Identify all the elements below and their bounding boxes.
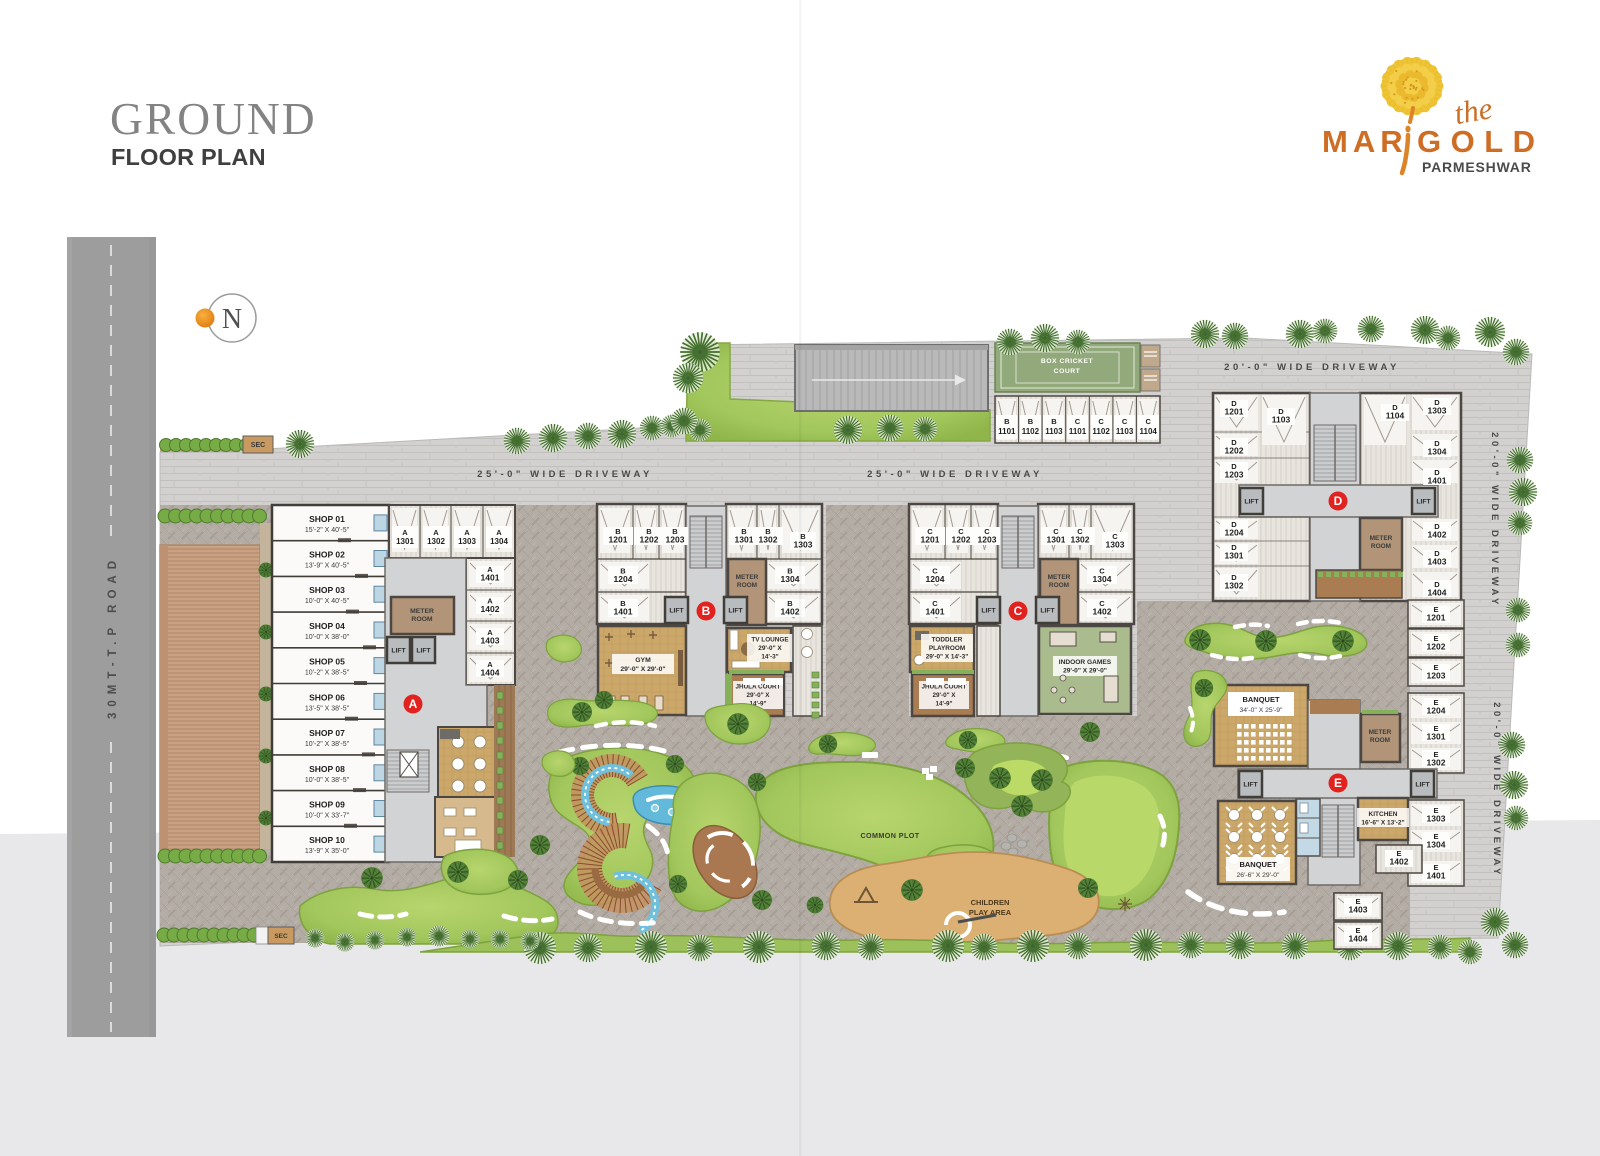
svg-text:1202: 1202 bbox=[640, 535, 659, 545]
svg-text:1401: 1401 bbox=[926, 607, 945, 617]
svg-text:C: C bbox=[1014, 604, 1023, 618]
svg-text:1203: 1203 bbox=[1427, 671, 1446, 681]
svg-text:SHOP 09: SHOP 09 bbox=[309, 800, 345, 810]
svg-text:29'-0" X: 29'-0" X bbox=[932, 692, 956, 699]
svg-text:1301: 1301 bbox=[396, 537, 414, 546]
svg-text:1103: 1103 bbox=[1116, 427, 1134, 436]
svg-text:1203: 1203 bbox=[978, 535, 997, 545]
svg-text:SHOP 07: SHOP 07 bbox=[309, 728, 345, 738]
svg-text:1403: 1403 bbox=[1349, 905, 1368, 915]
svg-text:LIFT: LIFT bbox=[1415, 782, 1430, 789]
svg-text:1304: 1304 bbox=[490, 537, 508, 546]
svg-text:LIFT: LIFT bbox=[981, 608, 996, 615]
svg-text:20'-0" WIDE DRIVEWAY: 20'-0" WIDE DRIVEWAY bbox=[1224, 362, 1400, 373]
svg-text:B: B bbox=[702, 604, 711, 618]
svg-text:29'-0" X 14'-3": 29'-0" X 14'-3" bbox=[926, 654, 969, 661]
svg-text:10'-0" X 33'-7": 10'-0" X 33'-7" bbox=[305, 813, 350, 820]
svg-text:A: A bbox=[464, 528, 470, 537]
svg-text:1302: 1302 bbox=[759, 535, 778, 545]
svg-text:1403: 1403 bbox=[1428, 557, 1447, 567]
svg-text:1404: 1404 bbox=[1428, 588, 1447, 598]
svg-text:29'-0" X: 29'-0" X bbox=[746, 692, 770, 699]
svg-text:LIFT: LIFT bbox=[1040, 608, 1055, 615]
svg-text:29'-0" X 29'-0": 29'-0" X 29'-0" bbox=[620, 666, 665, 673]
svg-text:1104: 1104 bbox=[1140, 427, 1158, 436]
svg-text:BANQUET: BANQUET bbox=[1239, 860, 1277, 869]
svg-text:METER: METER bbox=[410, 608, 434, 615]
svg-text:B: B bbox=[1004, 417, 1010, 426]
svg-text:1301: 1301 bbox=[1225, 551, 1244, 561]
svg-text:34'-0" X 25'-9": 34'-0" X 25'-9" bbox=[1240, 707, 1284, 714]
svg-text:METER: METER bbox=[1048, 574, 1071, 581]
svg-text:1304: 1304 bbox=[1427, 840, 1446, 850]
svg-text:COURT: COURT bbox=[1054, 368, 1081, 375]
svg-text:ROOM: ROOM bbox=[737, 582, 757, 589]
svg-text:MAR: MAR bbox=[1322, 124, 1408, 159]
svg-text:B: B bbox=[1051, 417, 1057, 426]
svg-text:1402: 1402 bbox=[1428, 530, 1447, 540]
svg-text:1201: 1201 bbox=[921, 535, 940, 545]
svg-text:1401: 1401 bbox=[614, 607, 633, 617]
svg-text:A: A bbox=[409, 697, 418, 711]
svg-text:LIFT: LIFT bbox=[1244, 499, 1259, 506]
svg-text:SHOP 05: SHOP 05 bbox=[309, 657, 345, 667]
svg-text:1404: 1404 bbox=[1349, 934, 1368, 944]
svg-text:20'-0" WIDE DRIVEWAY: 20'-0" WIDE DRIVEWAY bbox=[1491, 702, 1502, 878]
svg-text:SHOP 02: SHOP 02 bbox=[309, 550, 345, 560]
svg-text:1203: 1203 bbox=[666, 535, 685, 545]
svg-text:1402: 1402 bbox=[781, 607, 800, 617]
svg-text:30MT-T.P ROAD: 30MT-T.P ROAD bbox=[107, 555, 119, 719]
svg-text:SHOP 06: SHOP 06 bbox=[309, 692, 345, 702]
svg-text:25'-0" WIDE DRIVEWAY: 25'-0" WIDE DRIVEWAY bbox=[867, 469, 1043, 480]
svg-text:1304: 1304 bbox=[781, 574, 800, 584]
svg-text:1404: 1404 bbox=[481, 668, 500, 678]
svg-text:PARMESHWAR: PARMESHWAR bbox=[1422, 159, 1532, 175]
svg-text:29'-0" X: 29'-0" X bbox=[758, 645, 782, 652]
svg-text:1303: 1303 bbox=[1427, 814, 1446, 824]
svg-text:GROUND: GROUND bbox=[110, 93, 317, 144]
svg-text:KITCHEN: KITCHEN bbox=[1369, 811, 1398, 818]
svg-text:1202: 1202 bbox=[1427, 642, 1446, 652]
svg-text:1204: 1204 bbox=[614, 574, 633, 584]
svg-text:GYM: GYM bbox=[635, 657, 651, 664]
svg-text:LIFT: LIFT bbox=[669, 608, 684, 615]
svg-text:SHOP 03: SHOP 03 bbox=[309, 585, 345, 595]
svg-text:1201: 1201 bbox=[1225, 407, 1244, 417]
svg-text:13'-9" X 35'-0": 13'-9" X 35'-0" bbox=[305, 848, 350, 855]
svg-text:29'-0" X 29'-0": 29'-0" X 29'-0" bbox=[1063, 668, 1107, 675]
svg-text:1402: 1402 bbox=[1093, 607, 1112, 617]
svg-text:1202: 1202 bbox=[952, 535, 971, 545]
svg-text:LIFT: LIFT bbox=[391, 648, 406, 655]
svg-text:BOX CRICKET: BOX CRICKET bbox=[1041, 358, 1094, 365]
svg-text:1303: 1303 bbox=[1106, 540, 1125, 550]
svg-text:1402: 1402 bbox=[481, 604, 500, 614]
svg-text:13'-9" X 40'-5": 13'-9" X 40'-5" bbox=[305, 563, 350, 570]
svg-text:C: C bbox=[1145, 417, 1151, 426]
svg-text:PLAYROOM: PLAYROOM bbox=[929, 645, 965, 652]
svg-text:LIFT: LIFT bbox=[1243, 782, 1258, 789]
svg-text:1103: 1103 bbox=[1272, 415, 1291, 425]
svg-text:1301: 1301 bbox=[1427, 732, 1446, 742]
svg-text:14'-9": 14'-9" bbox=[935, 701, 952, 708]
svg-text:1303: 1303 bbox=[794, 540, 813, 550]
svg-text:SEC: SEC bbox=[251, 442, 265, 449]
svg-text:1304: 1304 bbox=[1093, 574, 1112, 584]
svg-text:SHOP 04: SHOP 04 bbox=[309, 621, 345, 631]
svg-text:1401: 1401 bbox=[1427, 871, 1446, 881]
svg-text:METER: METER bbox=[736, 574, 759, 581]
svg-text:1304: 1304 bbox=[1428, 447, 1447, 457]
svg-text:10'-2" X 38'-5": 10'-2" X 38'-5" bbox=[305, 741, 350, 748]
svg-text:C: C bbox=[1122, 417, 1128, 426]
svg-text:B: B bbox=[1028, 417, 1034, 426]
svg-text:C: C bbox=[1075, 417, 1081, 426]
svg-text:1101: 1101 bbox=[1069, 427, 1087, 436]
svg-text:1303: 1303 bbox=[458, 537, 476, 546]
svg-text:1101: 1101 bbox=[998, 427, 1016, 436]
svg-text:1302: 1302 bbox=[427, 537, 445, 546]
svg-text:1102: 1102 bbox=[1092, 427, 1110, 436]
svg-text:1204: 1204 bbox=[926, 574, 945, 584]
svg-text:A: A bbox=[433, 528, 439, 537]
svg-text:METER: METER bbox=[1370, 535, 1393, 542]
svg-text:ROOM: ROOM bbox=[411, 616, 432, 623]
svg-text:A: A bbox=[402, 528, 408, 537]
svg-text:BANQUET: BANQUET bbox=[1242, 695, 1280, 704]
svg-text:15'-2" X 40'-5": 15'-2" X 40'-5" bbox=[305, 527, 350, 534]
svg-text:1201: 1201 bbox=[1427, 613, 1446, 623]
svg-text:1202: 1202 bbox=[1225, 446, 1244, 456]
svg-text:D: D bbox=[1334, 494, 1343, 508]
svg-text:1102: 1102 bbox=[1022, 427, 1040, 436]
svg-text:1302: 1302 bbox=[1427, 758, 1446, 768]
svg-text:C: C bbox=[1098, 417, 1104, 426]
svg-text:1201: 1201 bbox=[609, 535, 628, 545]
svg-text:ROOM: ROOM bbox=[1049, 582, 1069, 589]
svg-text:E: E bbox=[1334, 776, 1342, 790]
svg-text:ROOM: ROOM bbox=[1371, 543, 1391, 550]
svg-text:LIFT: LIFT bbox=[416, 648, 431, 655]
svg-text:1203: 1203 bbox=[1225, 470, 1244, 480]
svg-text:1204: 1204 bbox=[1225, 528, 1244, 538]
svg-text:COMMON PLOT: COMMON PLOT bbox=[860, 831, 919, 840]
svg-text:1402: 1402 bbox=[1390, 857, 1409, 867]
svg-text:FLOOR PLAN: FLOOR PLAN bbox=[111, 144, 266, 170]
svg-text:1301: 1301 bbox=[735, 535, 754, 545]
svg-text:1401: 1401 bbox=[481, 573, 500, 583]
svg-text:METER: METER bbox=[1369, 729, 1392, 736]
svg-text:INDOOR GAMES: INDOOR GAMES bbox=[1059, 659, 1112, 666]
svg-text:LIFT: LIFT bbox=[1416, 499, 1431, 506]
svg-text:1302: 1302 bbox=[1071, 535, 1090, 545]
svg-text:1104: 1104 bbox=[1386, 411, 1405, 421]
svg-text:1303: 1303 bbox=[1428, 406, 1447, 416]
svg-text:16'-6" X 13'-2": 16'-6" X 13'-2" bbox=[1361, 820, 1404, 827]
svg-text:SHOP 08: SHOP 08 bbox=[309, 764, 345, 774]
svg-text:1302: 1302 bbox=[1225, 581, 1244, 591]
svg-text:14'-3": 14'-3" bbox=[761, 654, 778, 661]
svg-text:GOLD: GOLD bbox=[1417, 124, 1545, 159]
svg-text:TV LOUNGE: TV LOUNGE bbox=[751, 637, 789, 644]
svg-text:10'-0" X 38'-0": 10'-0" X 38'-0" bbox=[305, 634, 350, 641]
svg-text:13'-5" X 38'-5": 13'-5" X 38'-5" bbox=[305, 705, 350, 712]
svg-text:CHILDREN: CHILDREN bbox=[971, 898, 1010, 907]
svg-text:A: A bbox=[496, 528, 502, 537]
svg-text:20'-0" WIDE DRIVEWAY: 20'-0" WIDE DRIVEWAY bbox=[1489, 432, 1500, 608]
svg-text:SHOP 10: SHOP 10 bbox=[309, 835, 345, 845]
svg-text:10'-0" X 40'-5": 10'-0" X 40'-5" bbox=[305, 598, 350, 605]
svg-text:25'-0" WIDE DRIVEWAY: 25'-0" WIDE DRIVEWAY bbox=[477, 469, 653, 480]
svg-text:TODDLER: TODDLER bbox=[932, 637, 963, 644]
svg-text:10'-2" X 38'-5": 10'-2" X 38'-5" bbox=[305, 670, 350, 677]
svg-text:10'-0" X 38'-5": 10'-0" X 38'-5" bbox=[305, 777, 350, 784]
svg-text:1401: 1401 bbox=[1428, 476, 1447, 486]
svg-text:ROOM: ROOM bbox=[1370, 737, 1390, 744]
svg-text:1204: 1204 bbox=[1427, 706, 1446, 716]
svg-text:1403: 1403 bbox=[481, 636, 500, 646]
svg-text:LIFT: LIFT bbox=[728, 608, 743, 615]
svg-text:1301: 1301 bbox=[1047, 535, 1066, 545]
svg-text:SHOP 01: SHOP 01 bbox=[309, 514, 345, 524]
svg-text:26'-6" X 29'-0": 26'-6" X 29'-0" bbox=[1237, 872, 1281, 879]
svg-text:N: N bbox=[222, 304, 242, 335]
svg-text:SEC: SEC bbox=[274, 933, 288, 940]
svg-text:1103: 1103 bbox=[1045, 427, 1063, 436]
